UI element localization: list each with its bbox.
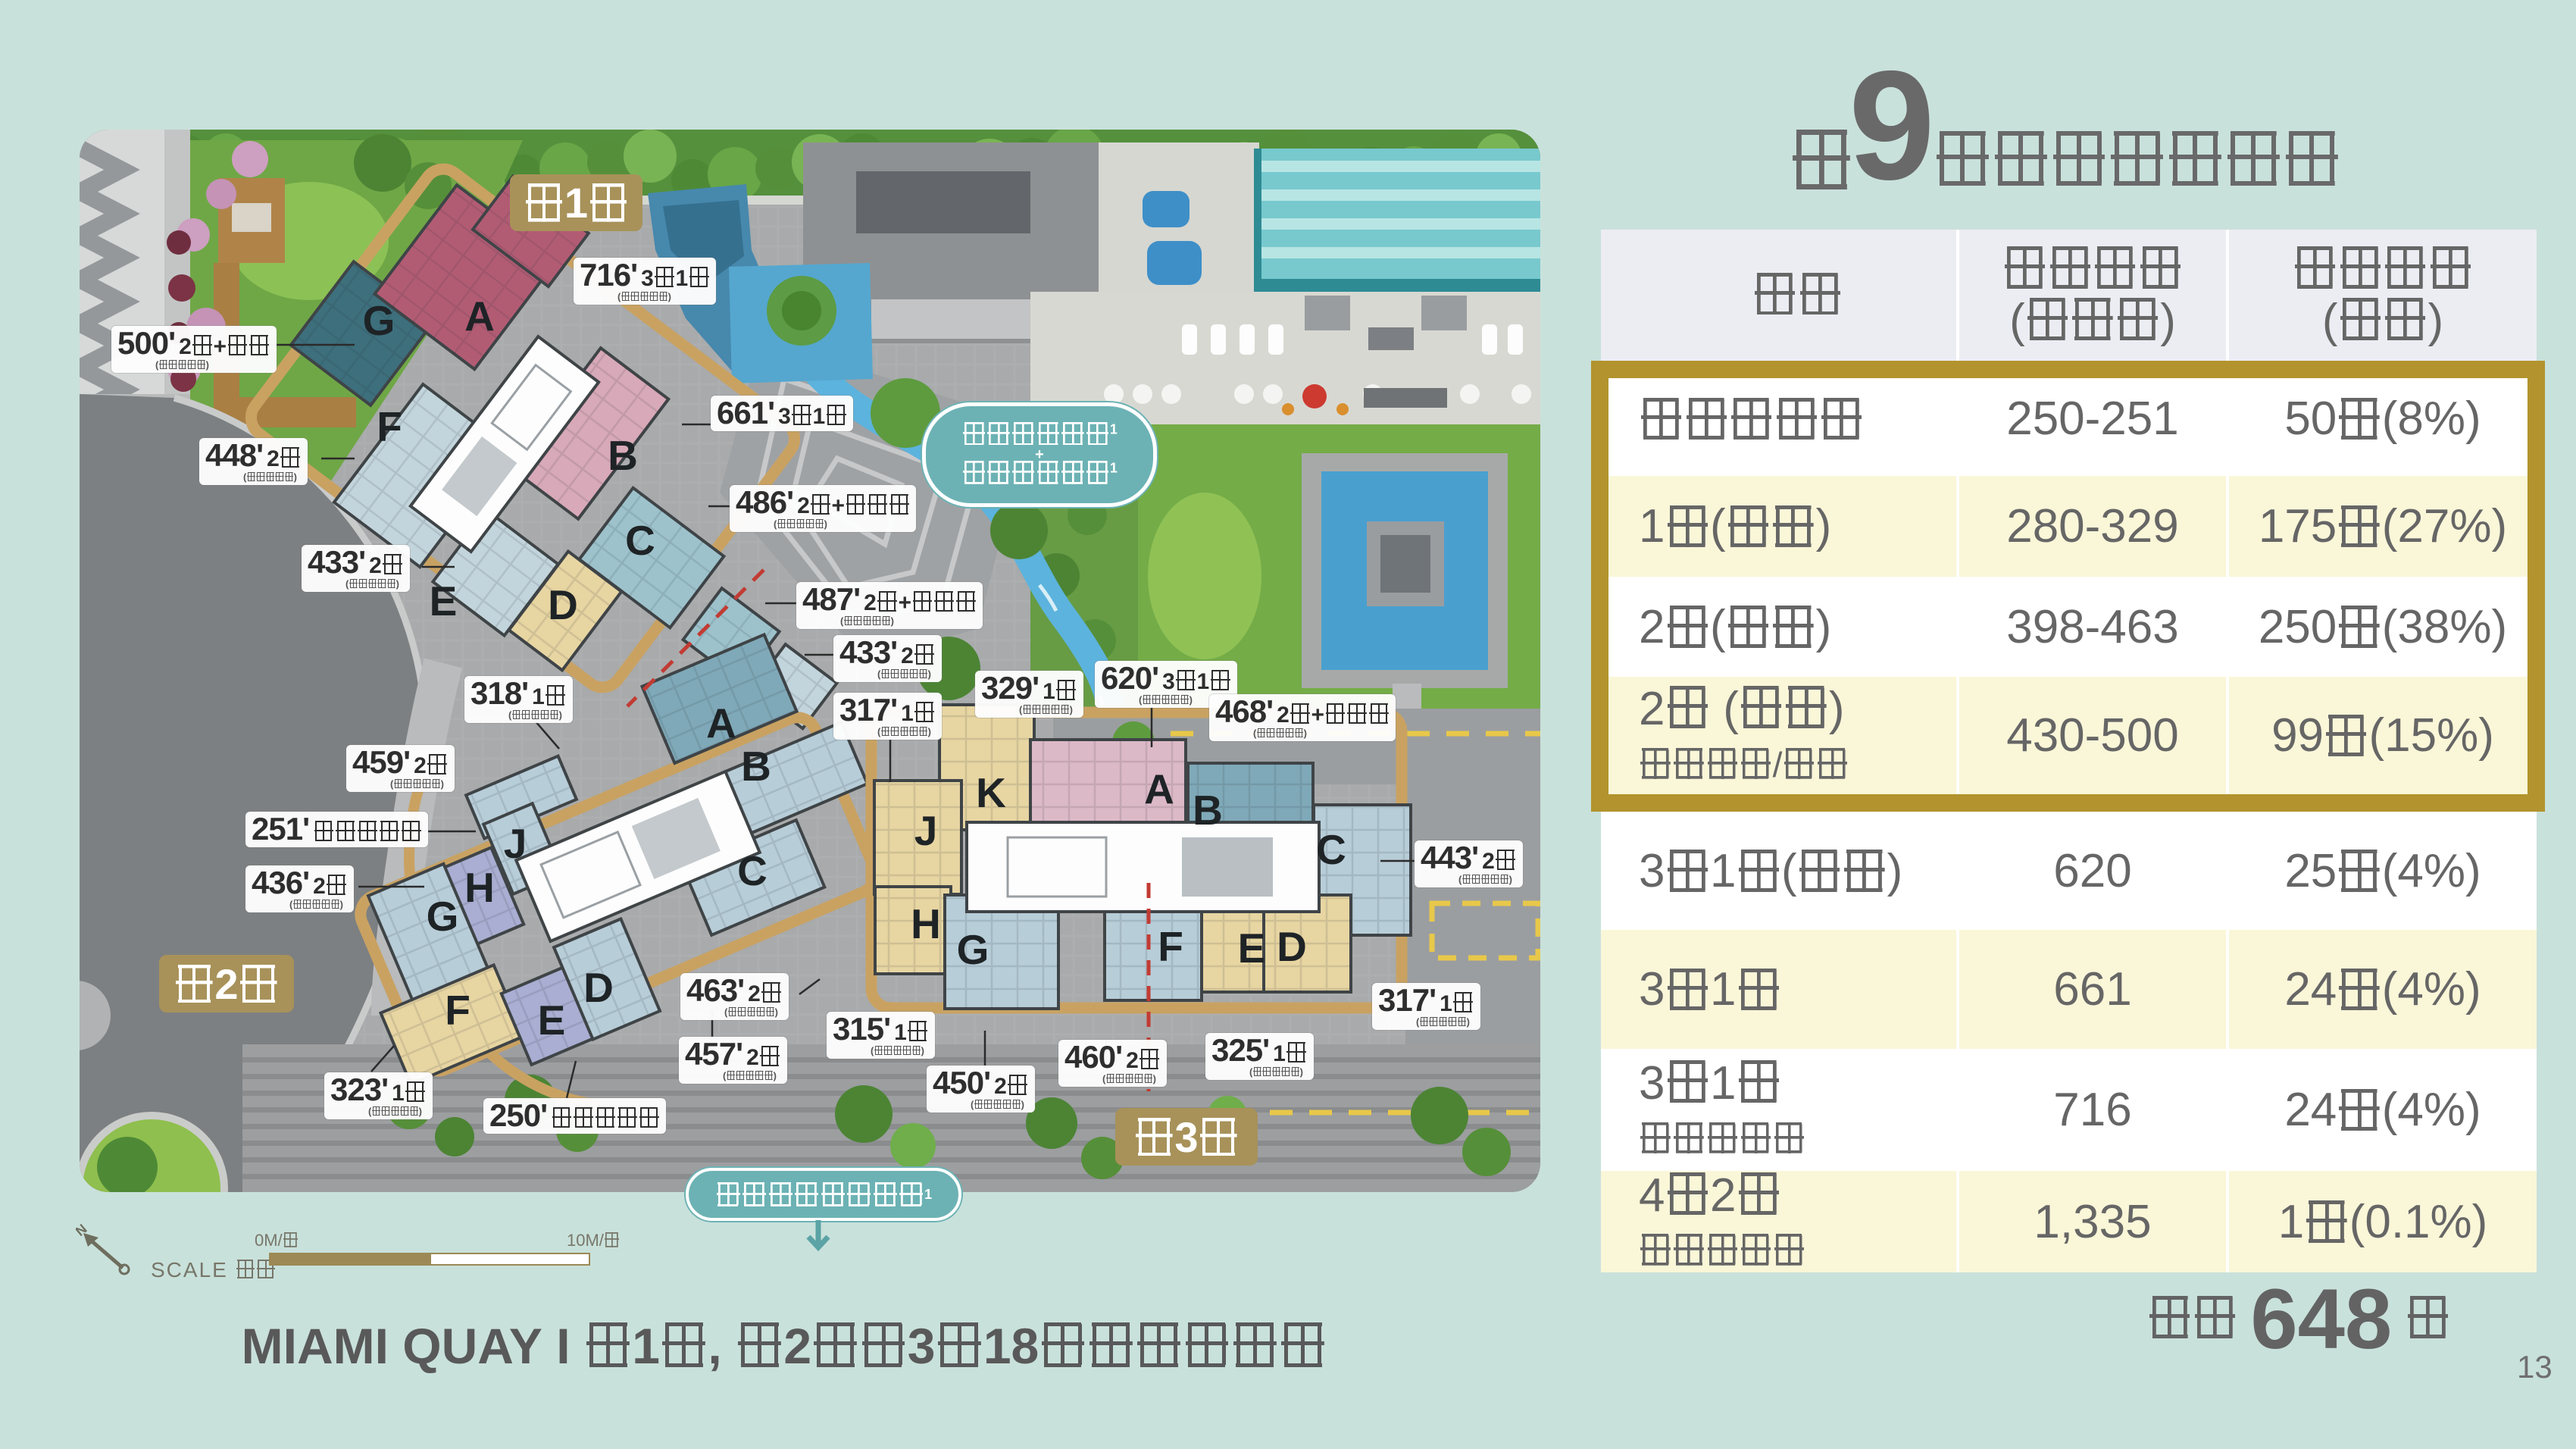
svg-text:E: E — [538, 997, 566, 1044]
svg-text:B: B — [608, 432, 638, 479]
svg-text:H: H — [911, 900, 941, 947]
svg-text:F: F — [1158, 923, 1183, 970]
svg-text:C: C — [737, 847, 767, 894]
svg-text:A: A — [464, 293, 495, 340]
svg-text:D: D — [1277, 923, 1307, 970]
svg-text:D: D — [583, 964, 614, 1011]
svg-text:F: F — [377, 403, 402, 450]
svg-text:G: G — [363, 297, 395, 344]
svg-text:H: H — [464, 864, 495, 911]
svg-text:G: G — [427, 893, 459, 940]
svg-text:B: B — [1193, 787, 1223, 834]
svg-text:D: D — [548, 581, 578, 628]
svg-text:G: G — [957, 926, 989, 973]
svg-text:C: C — [625, 517, 655, 564]
svg-text:C: C — [1316, 826, 1346, 873]
svg-text:A: A — [706, 699, 736, 746]
svg-text:K: K — [976, 769, 1006, 816]
svg-text:J: J — [914, 807, 938, 854]
svg-text:A: A — [1144, 765, 1174, 812]
svg-text:F: F — [445, 987, 470, 1034]
svg-text:E: E — [1238, 925, 1266, 972]
svg-text:E: E — [430, 577, 458, 624]
svg-text:B: B — [741, 743, 771, 790]
svg-text:J: J — [504, 820, 527, 867]
